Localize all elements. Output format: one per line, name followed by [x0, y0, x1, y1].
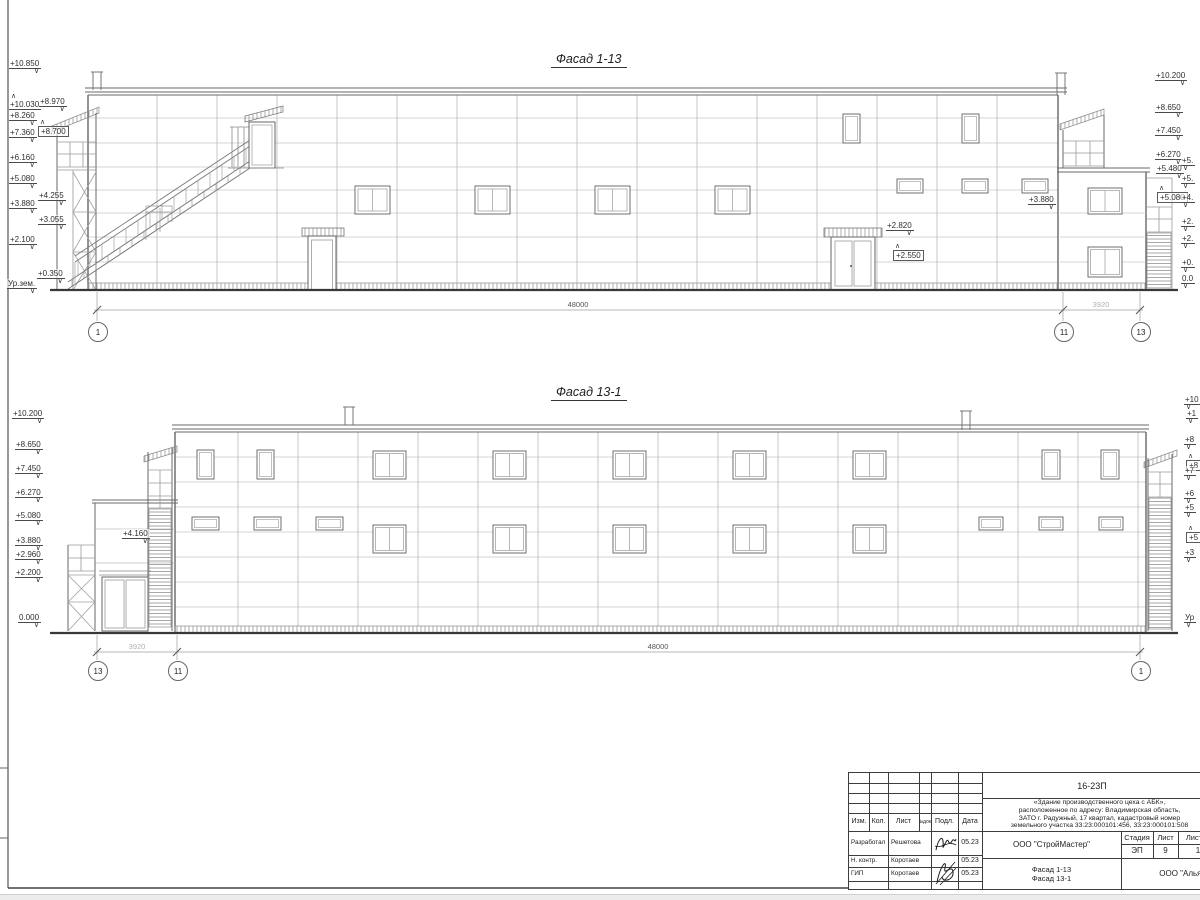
- window: [843, 114, 860, 143]
- tb-description-line: земельного участка 33:23:000101:456, 33:…: [1011, 822, 1189, 830]
- top-dimensions: [93, 292, 1144, 321]
- elevation-mark: +7.360: [9, 128, 37, 143]
- window: [493, 525, 526, 553]
- external-staircase: [68, 140, 250, 289]
- tb-role: Разработал: [849, 831, 890, 855]
- axis-bubble: 1: [88, 322, 108, 342]
- elevation-mark: +10.850: [9, 59, 41, 74]
- right-ladder: [1144, 450, 1177, 631]
- sheet-frame: [0, 0, 1200, 888]
- elevation-mark: +3.055: [38, 215, 66, 230]
- elevation-mark: +3.880: [15, 536, 43, 551]
- window: [373, 451, 406, 479]
- axis-bubble: 13: [88, 661, 108, 681]
- tb-role: ГИП: [849, 867, 890, 881]
- window: [853, 525, 886, 553]
- drawing-linework: [0, 0, 1200, 900]
- window: [1022, 179, 1048, 193]
- elevation-mark: +5: [1184, 503, 1196, 518]
- window: [254, 517, 281, 530]
- tb-col-podl: Подл.: [931, 813, 958, 831]
- elevation-mark: +3.880: [9, 199, 37, 214]
- window: [733, 525, 766, 553]
- tb-description-line: расположенное по адресу: Владимирская об…: [1019, 807, 1181, 815]
- elevation-mark: +3.880: [1028, 195, 1056, 210]
- tb-doc-number: 16-23П: [982, 775, 1200, 796]
- axis-bubble: 1: [1131, 661, 1151, 681]
- elevation-mark: +8.650: [15, 440, 43, 455]
- elevation-mark: +7.450: [1155, 126, 1183, 141]
- elevation-mark: +2.550: [893, 245, 924, 261]
- tb-sheet-value: 9: [1153, 844, 1178, 858]
- elevation-mark: +8.970: [39, 97, 67, 112]
- window: [853, 451, 886, 479]
- tb-col-izm: Изм.: [849, 813, 869, 831]
- window: [475, 186, 510, 214]
- elevation-mark: +6.160: [9, 153, 37, 168]
- elevation-mark: +10.030: [9, 95, 41, 110]
- elevation-mark: +1: [1186, 409, 1198, 424]
- tb-sheets-label: Листов: [1178, 831, 1200, 844]
- tb-name: Коротаев: [889, 855, 933, 867]
- signature: [933, 856, 958, 886]
- elevation-mark: +3: [1184, 548, 1196, 563]
- elevation-mark: +10: [1184, 395, 1200, 410]
- right-annex: [1057, 109, 1150, 290]
- elevation-mark: +2.200: [15, 568, 43, 583]
- tb-description: «Здание производственного цеха с АБК», р…: [982, 799, 1200, 830]
- elevation-mark: +5.080: [9, 174, 37, 189]
- elevation-mark: +8.650: [1155, 103, 1183, 118]
- tb-col-kol: Кол.: [869, 813, 888, 831]
- window: [1039, 517, 1063, 530]
- window: [373, 525, 406, 553]
- dimension-label: 48000: [556, 300, 600, 309]
- axis-bubble: 11: [1054, 322, 1074, 342]
- window: [613, 451, 646, 479]
- tb-date: 05.23: [958, 831, 982, 855]
- title-block: Изм. Кол. Лист №док. Подл. Дата Разработ…: [848, 772, 1200, 890]
- elevation-mark: 0.0: [1181, 274, 1195, 289]
- bottom-dimensions: [93, 635, 1144, 660]
- elevation-mark: +4.160: [122, 529, 150, 544]
- elevation-mark: +5.: [1181, 156, 1195, 171]
- tb-client-org: ООО "Альянс": [1121, 858, 1200, 889]
- window: [595, 186, 630, 214]
- top-facade-title: Фасад 1-13: [551, 52, 627, 68]
- top-facade-drawing: [50, 72, 1178, 321]
- elevation-mark: +8.700: [38, 121, 69, 137]
- tb-name: Решетова: [889, 831, 933, 855]
- signature: [933, 832, 958, 854]
- window: [493, 451, 526, 479]
- tb-sheet-label: Лист: [1153, 831, 1178, 844]
- elevation-mark: +5: [1186, 527, 1200, 543]
- window: [733, 451, 766, 479]
- left-brace-tower: [68, 545, 95, 631]
- tb-name: Коротаев: [889, 867, 933, 881]
- bottom-facade-title: Фасад 13-1: [551, 385, 627, 401]
- window: [1101, 450, 1119, 479]
- window: [962, 114, 979, 143]
- ground-level-mark: Ур.зем.: [7, 279, 37, 294]
- window: [192, 517, 219, 530]
- bottom-facade-drawing: [50, 407, 1178, 660]
- tb-col-ndok: №док.: [919, 813, 931, 831]
- tb-col-list: Лист: [888, 813, 919, 831]
- tb-subject: Фасад 1-13 Фасад 13-1: [982, 858, 1121, 889]
- window: [316, 517, 343, 530]
- tb-col-data: Дата: [958, 813, 982, 831]
- tb-designer-org: ООО "СтройМастер": [982, 831, 1121, 858]
- elevation-mark: +2.820: [886, 221, 914, 236]
- elevation-mark: +2.960: [15, 550, 43, 565]
- axis-bubble: 13: [1131, 322, 1151, 342]
- elevation-mark: +6.270: [1155, 150, 1183, 165]
- drawing-sheet: Фасад 1-13 Фасад 13-1 +10.850 +10.030 +8…: [0, 0, 1200, 900]
- elevation-mark: +8.260: [9, 111, 37, 126]
- window: [897, 179, 923, 193]
- elevation-mark: +10.200: [1155, 71, 1187, 86]
- elevation-mark: +0.: [1181, 258, 1195, 273]
- double-door: [824, 228, 882, 290]
- elevation-mark: +8: [1184, 435, 1196, 450]
- window: [197, 450, 214, 479]
- page-edge: [0, 894, 1200, 900]
- window: [257, 450, 274, 479]
- elevation-mark: +0.350: [37, 269, 65, 284]
- tb-subject-line: Фасад 13-1: [1032, 874, 1071, 883]
- tb-stage-label: Стадия: [1121, 831, 1153, 844]
- elevation-mark: +10.200: [12, 409, 44, 424]
- elevation-mark: +6.270: [15, 488, 43, 503]
- tb-description-line: «Здание производственного цеха с АБК»,: [1034, 799, 1166, 807]
- window: [355, 186, 390, 214]
- elevation-mark: +4.: [1181, 193, 1195, 208]
- elevation-mark: +5.: [1181, 174, 1195, 189]
- elevation-mark: +2.: [1181, 217, 1195, 232]
- window: [1042, 450, 1060, 479]
- window: [715, 186, 750, 214]
- tb-date: 05.23: [958, 867, 982, 881]
- window: [613, 525, 646, 553]
- elevation-mark: +5.080: [15, 511, 43, 526]
- dimension-label: 3920: [1079, 300, 1123, 309]
- stair-landing-door: [228, 106, 284, 168]
- tb-role: Н. контр.: [849, 855, 890, 867]
- window: [962, 179, 988, 193]
- tb-subject-line: Фасад 1-13: [1032, 865, 1071, 874]
- window: [1099, 517, 1123, 530]
- tb-description-line: ЗАТО г. Радужный, 17 квартал, кадастровы…: [1019, 815, 1180, 823]
- ground-level-mark: Ур: [1184, 613, 1196, 628]
- tb-stage-value: ЭП: [1121, 844, 1153, 858]
- window: [979, 517, 1003, 530]
- elevation-mark: +6: [1184, 489, 1196, 504]
- elevation-mark: +7: [1184, 466, 1196, 481]
- elevation-mark: +4.255: [38, 191, 66, 206]
- elevation-mark: +5.480: [1156, 164, 1184, 179]
- elevation-mark: 0.000: [18, 613, 41, 628]
- tb-date: 05.23: [958, 855, 982, 867]
- dimension-label: 48000: [636, 642, 680, 651]
- dimension-label: 3920: [115, 642, 159, 651]
- elevation-mark: +7.450: [15, 464, 43, 479]
- elevation-mark: +2.: [1181, 234, 1195, 249]
- tb-sheets-value: 1: [1178, 844, 1200, 858]
- axis-bubble: 11: [168, 661, 188, 681]
- elevation-mark: +2.100: [9, 235, 37, 250]
